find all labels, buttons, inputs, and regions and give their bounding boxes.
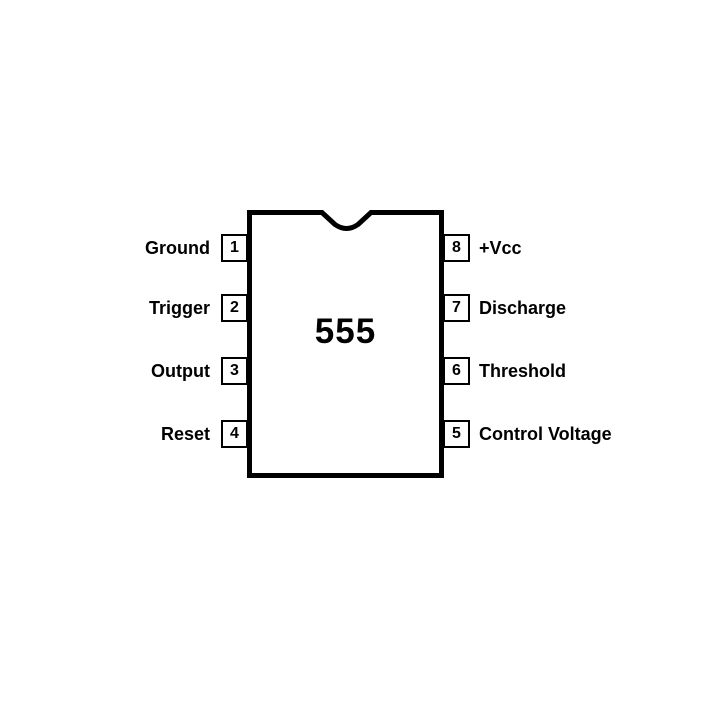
pin-2-label: Trigger (149, 294, 210, 322)
pin-7-number: 7 (452, 299, 461, 317)
pin-1-number: 1 (230, 239, 239, 257)
pin-6-box: 6 (443, 357, 470, 385)
pin-5-box: 5 (443, 420, 470, 448)
pin-2-number: 2 (230, 299, 239, 317)
pin-1-box: 1 (221, 234, 248, 262)
chip-label: 555 (247, 312, 444, 352)
pin-8-label: +Vcc (479, 234, 522, 262)
chip-body (0, 0, 720, 720)
pin-4-box: 4 (221, 420, 248, 448)
pin-7-box: 7 (443, 294, 470, 322)
pin-8-box: 8 (443, 234, 470, 262)
pin-4-label: Reset (161, 420, 210, 448)
pin-7-label: Discharge (479, 294, 566, 322)
pin-5-number: 5 (452, 425, 461, 443)
pin-5-label: Control Voltage (479, 420, 612, 448)
pin-6-label: Threshold (479, 357, 566, 385)
pinout-diagram: 555 1 2 3 4 Ground Trigger Output Reset … (0, 0, 720, 720)
pin-3-label: Output (151, 357, 210, 385)
pin-3-number: 3 (230, 362, 239, 380)
pin-6-number: 6 (452, 362, 461, 380)
pin-3-box: 3 (221, 357, 248, 385)
pin-1-label: Ground (145, 234, 210, 262)
pin-4-number: 4 (230, 425, 239, 443)
pin-8-number: 8 (452, 239, 461, 257)
pin-2-box: 2 (221, 294, 248, 322)
